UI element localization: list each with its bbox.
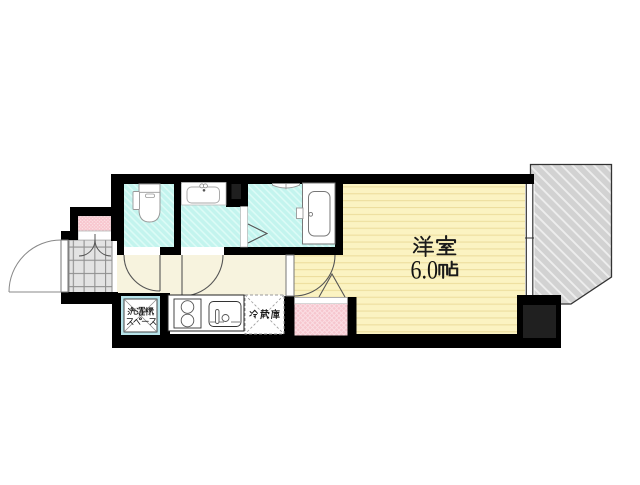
svg-text:6.0: 6.0 <box>411 256 439 285</box>
